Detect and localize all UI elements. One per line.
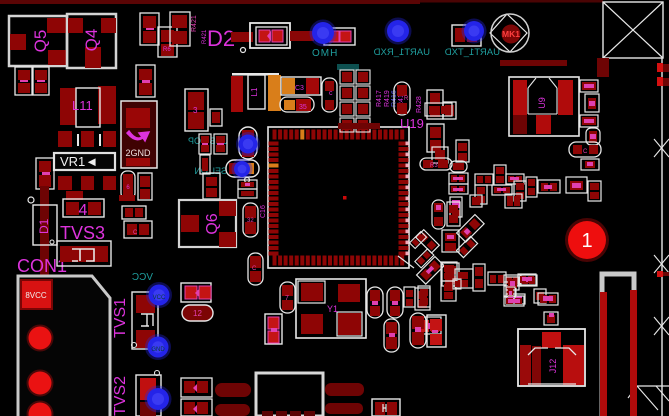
svg-text:U9: U9 (537, 97, 547, 109)
svg-text:C: C (583, 149, 588, 155)
svg-text:SEL ON: SEL ON (194, 166, 227, 176)
svg-text:R421: R421 (191, 15, 198, 32)
svg-text:35: 35 (299, 104, 307, 111)
svg-text:VCC: VCC (153, 295, 166, 301)
svg-text:OMH: OMH (312, 48, 338, 59)
svg-text:R419: R419 (384, 90, 391, 107)
svg-text:R428: R428 (416, 96, 423, 113)
svg-text:L1: L1 (250, 87, 259, 96)
svg-text:GND: GND (151, 347, 165, 353)
svg-text:TVS3: TVS3 (60, 223, 105, 243)
svg-text:7: 7 (285, 295, 289, 302)
svg-text:D1: D1 (37, 218, 51, 234)
svg-text:12: 12 (193, 309, 202, 318)
svg-text:R: R (404, 96, 409, 102)
svg-text:2GND: 2GND (125, 148, 151, 158)
svg-text:R417: R417 (376, 90, 383, 107)
svg-text:Q4: Q4 (82, 29, 101, 52)
svg-text:TVS2: TVS2 (112, 376, 129, 416)
svg-text:4: 4 (79, 202, 88, 219)
svg-text:VCC: VCC (132, 272, 153, 283)
svg-text:D2: D2 (207, 26, 235, 51)
svg-text:Q5: Q5 (31, 30, 50, 53)
svg-text:1: 1 (581, 230, 592, 252)
svg-text:C16: C16 (260, 205, 267, 218)
svg-text:c: c (329, 90, 333, 97)
svg-text:Q6: Q6 (204, 213, 221, 234)
svg-text:L11: L11 (72, 98, 93, 113)
svg-text:32: 32 (247, 218, 254, 224)
svg-text:U19: U19 (400, 116, 424, 131)
svg-text:UART1_TXD: UART1_TXD (445, 47, 500, 58)
svg-text:C: C (252, 266, 257, 272)
svg-text:UART1_RXD: UART1_RXD (374, 47, 430, 58)
svg-text:R6: R6 (163, 47, 171, 53)
svg-text:MK1: MK1 (502, 29, 520, 39)
svg-text:R3: R3 (430, 163, 438, 169)
svg-text:TVS1: TVS1 (112, 298, 129, 338)
svg-text:C3: C3 (295, 85, 304, 92)
svg-text:8VCC: 8VCC (25, 291, 47, 300)
svg-text:C: C (133, 230, 138, 236)
svg-text:J12: J12 (548, 359, 558, 374)
svg-text:3: 3 (193, 106, 198, 115)
svg-text:Y1: Y1 (327, 304, 338, 314)
svg-text:VR1◄: VR1◄ (60, 154, 98, 169)
